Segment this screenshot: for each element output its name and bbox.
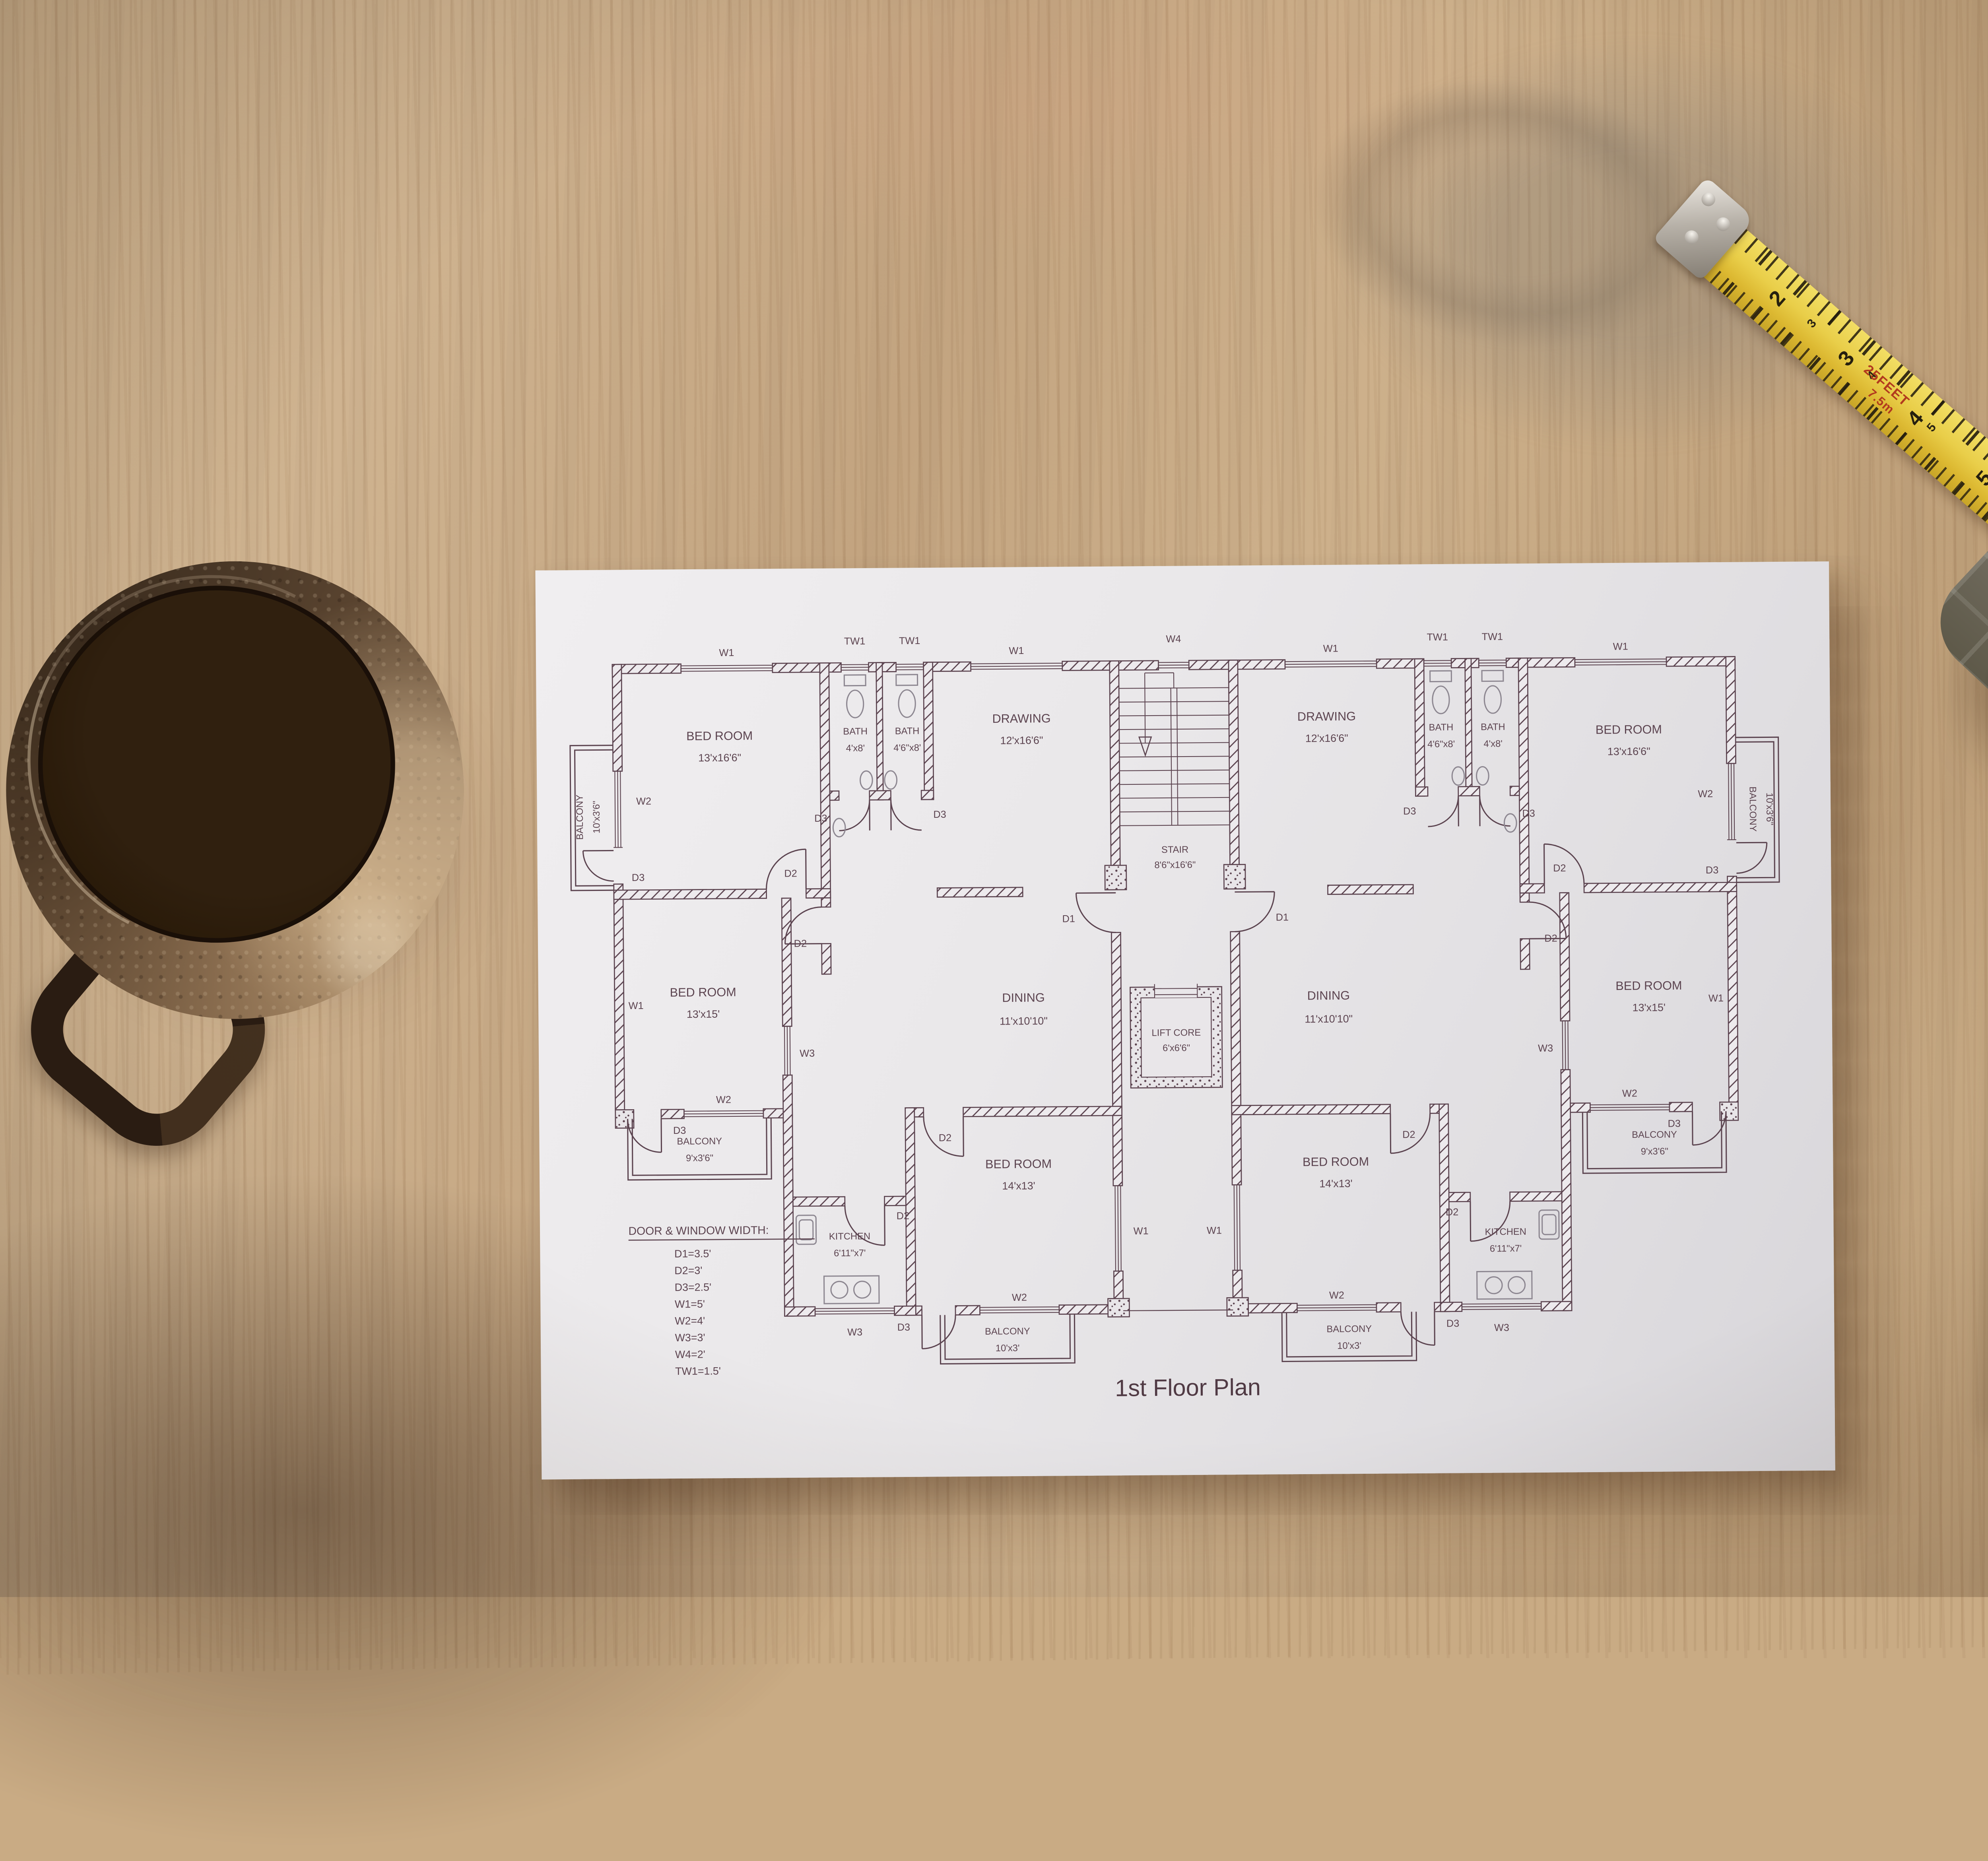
photo-vignette	[0, 0, 1988, 1597]
photo-scene: BED ROOM 13'x16'6" BED ROOM 13'x16'6" BA…	[0, 0, 1988, 1597]
